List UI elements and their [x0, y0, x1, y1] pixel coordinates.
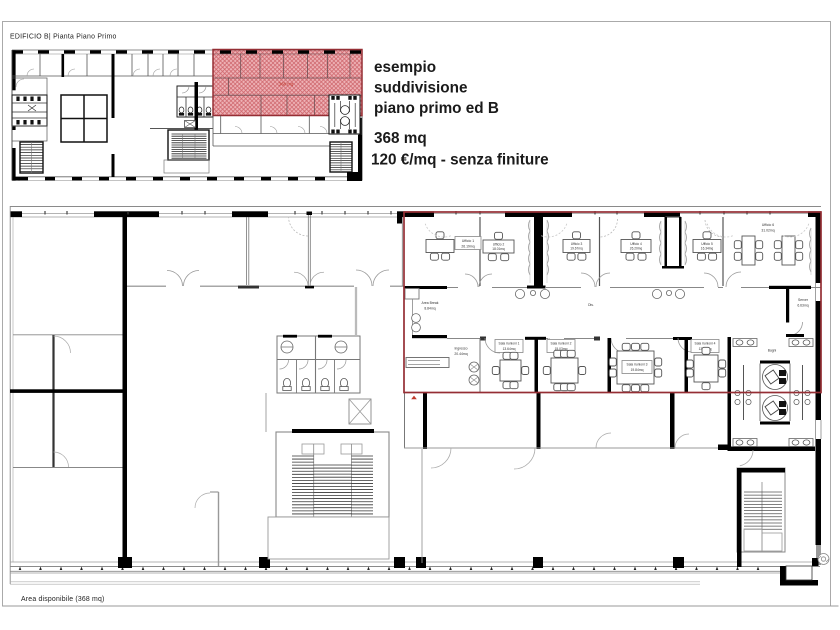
- svg-text:6.63mq: 6.63mq: [797, 304, 808, 308]
- svg-text:Area disponibile (368 mq): Area disponibile (368 mq): [21, 596, 105, 603]
- svg-text:18.01mq: 18.01mq: [492, 247, 505, 251]
- svg-text:Dis.: Dis.: [588, 303, 594, 307]
- svg-text:Ingresso: Ingresso: [454, 347, 467, 351]
- svg-text:26.19mq: 26.19mq: [461, 245, 474, 249]
- svg-text:20.44mq: 20.44mq: [454, 352, 467, 356]
- svg-text:120 €/mq - senza finiture: 120 €/mq - senza finiture: [371, 152, 549, 169]
- svg-text:suddivisione: suddivisione: [374, 80, 468, 97]
- svg-text:26.20mq: 26.20mq: [630, 246, 643, 250]
- svg-text:esempio: esempio: [374, 59, 436, 76]
- svg-text:Ufficio 1: Ufficio 1: [462, 239, 474, 243]
- svg-text:368 mq: 368 mq: [374, 130, 427, 147]
- svg-text:19.67mq: 19.67mq: [570, 246, 583, 250]
- svg-text:Bagni: Bagni: [768, 349, 777, 353]
- svg-text:368 mq: 368 mq: [279, 82, 294, 87]
- svg-text:piano primo ed B: piano primo ed B: [374, 100, 499, 117]
- svg-text:Area Break: Area Break: [422, 301, 439, 305]
- svg-text:8.84mq: 8.84mq: [424, 307, 435, 311]
- svg-text:EDIFICIO B| Pianta Piano Primo: EDIFICIO B| Pianta Piano Primo: [10, 34, 117, 41]
- svg-text:Server: Server: [798, 298, 809, 302]
- svg-text:Sala riunioni 1: Sala riunioni 1: [499, 342, 520, 346]
- svg-text:16.34mq: 16.34mq: [701, 246, 714, 250]
- svg-text:Sala riunioni 3: Sala riunioni 3: [627, 363, 648, 367]
- svg-text:19.84mq: 19.84mq: [631, 368, 644, 372]
- svg-text:31.02mq: 31.02mq: [761, 229, 774, 233]
- svg-text:Ufficio 6: Ufficio 6: [762, 223, 774, 227]
- svg-text:13.64mq: 13.64mq: [503, 347, 516, 351]
- svg-text:Sala riunioni 2: Sala riunioni 2: [551, 342, 572, 346]
- svg-text:Sala riunioni 4: Sala riunioni 4: [695, 342, 716, 346]
